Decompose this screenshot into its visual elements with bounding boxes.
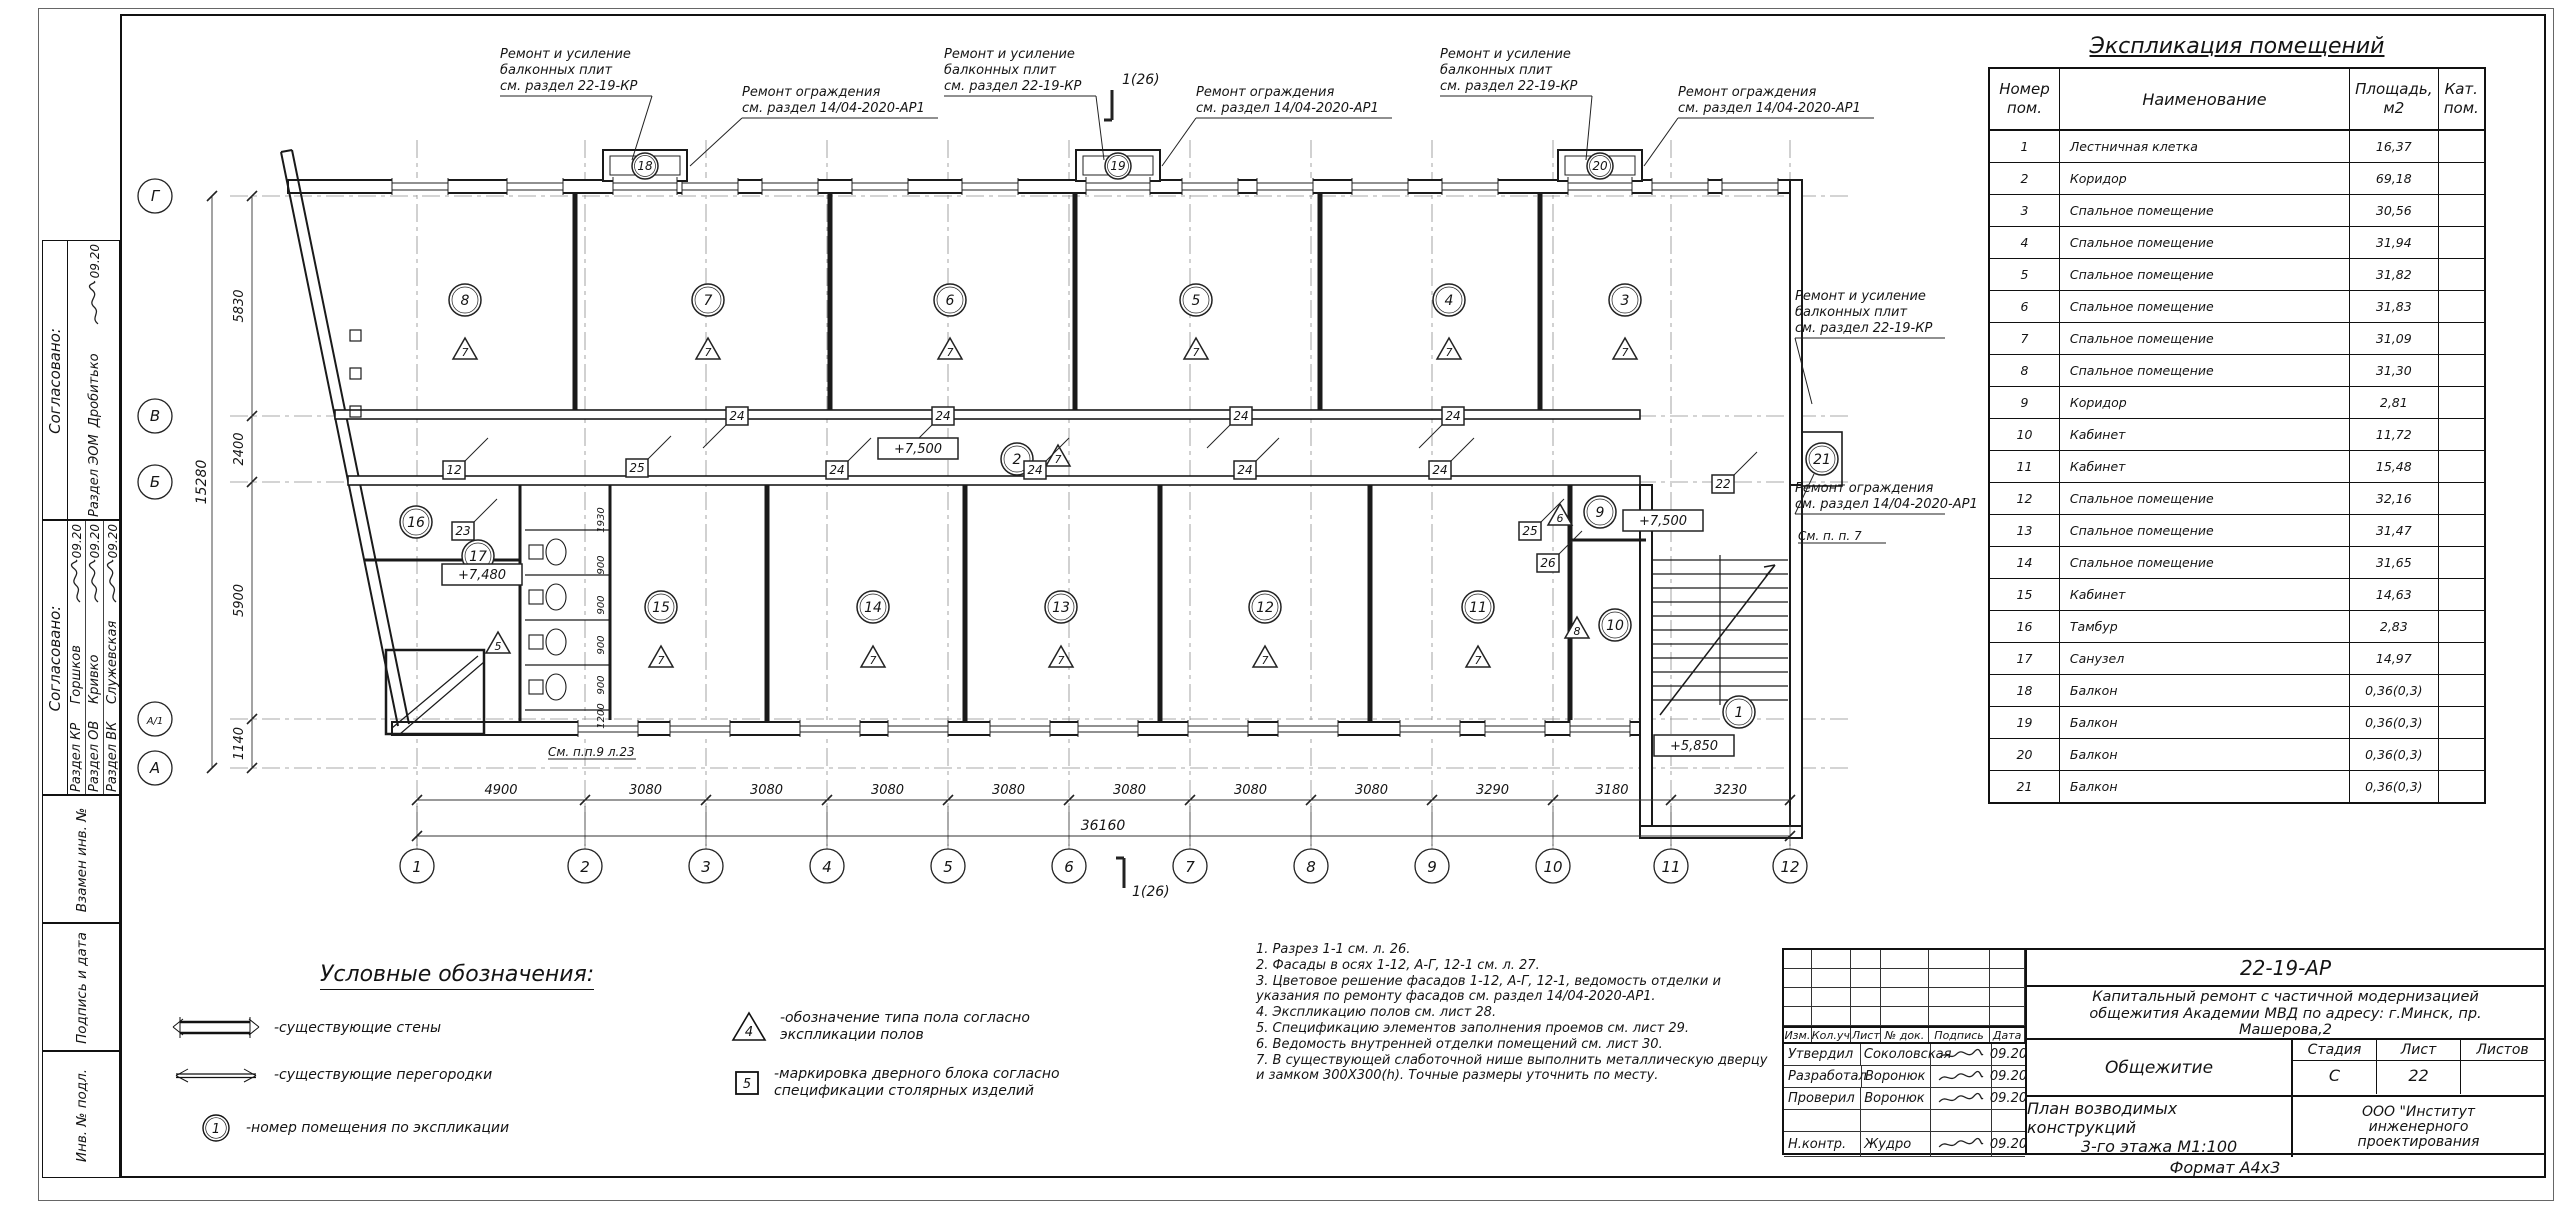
sheet-value: 22 bbox=[2377, 1061, 2461, 1094]
schedule-row: 3Спальное помещение30,56 bbox=[1989, 195, 2485, 227]
door-mark-number: 24 bbox=[1432, 463, 1447, 477]
schedule-row: 5Спальное помещение31,82 bbox=[1989, 259, 2485, 291]
signature-row: ПроверилВоронюк09.20 bbox=[1784, 1088, 2025, 1110]
schedule-row: 13Спальное помещение31,47 bbox=[1989, 515, 2485, 547]
signature-row: Н.контр.Жудро09.20 bbox=[1784, 1132, 2025, 1157]
dimension-label: 3080 bbox=[871, 783, 904, 798]
annotation-text: Ремонт ограждения bbox=[1196, 85, 1334, 100]
stamp-cell: Инв. № подл. bbox=[42, 1051, 120, 1178]
annotation-text: см. раздел 14/04-2020-АР1 bbox=[742, 101, 925, 116]
door-mark-number: 24 bbox=[1233, 409, 1248, 423]
dimension-label: 5900 bbox=[232, 584, 247, 617]
schedule-row: 18Балкон0,36(0,3) bbox=[1989, 675, 2485, 707]
annotation-text: см. раздел 22-19-КР bbox=[1795, 321, 1932, 336]
section-mark: 1(26) bbox=[1122, 72, 1160, 88]
annotation-text: см. раздел 14/04-2020-АР1 bbox=[1795, 497, 1978, 512]
general-notes: 1. Разрез 1-1 см. л. 26.2. Фасады в осях… bbox=[1256, 942, 1796, 1084]
dimension-label: 5830 bbox=[232, 289, 247, 322]
plan-note: См. п. п. 7 bbox=[1798, 529, 1862, 543]
stamp-cell: Подпись и дата bbox=[42, 923, 120, 1051]
sheet-label: Лист bbox=[2377, 1040, 2461, 1060]
room-number: 6 bbox=[946, 293, 955, 309]
stairs bbox=[1652, 555, 1788, 715]
schedule-row: 10Кабинет11,72 bbox=[1989, 419, 2485, 451]
floor-plan-svg: 1490023080330804308053080630807308083080… bbox=[130, 20, 2000, 940]
room-number: 12 bbox=[1256, 600, 1274, 616]
schedule-row: 14Спальное помещение31,65 bbox=[1989, 547, 2485, 579]
floor-type-number: 5 bbox=[495, 640, 502, 653]
signature bbox=[106, 558, 120, 604]
annotation-text: Ремонт ограждения bbox=[742, 85, 880, 100]
schedule-row: 4Спальное помещение31,94 bbox=[1989, 227, 2485, 259]
legend: Условные обозначения: -существующие стен… bbox=[170, 962, 1180, 1177]
schedule-row: 2Коридор69,18 bbox=[1989, 163, 2485, 195]
annotation-text: Ремонт и усиление bbox=[500, 47, 631, 62]
dimension-label: 4900 bbox=[484, 783, 517, 798]
project-description: Капитальный ремонт с частичной модерниза… bbox=[2027, 987, 2544, 1040]
company-name: ООО "Институт инженерного проектирования bbox=[2293, 1097, 2544, 1157]
schedule-row: 15Кабинет14,63 bbox=[1989, 579, 2485, 611]
floor-type-number: 7 bbox=[870, 654, 877, 667]
annotation-text: балконных плит bbox=[944, 63, 1056, 78]
agreed-label: Согласовано: bbox=[43, 241, 68, 520]
dimension-label: 900 bbox=[596, 595, 607, 614]
floor-type-number: 7 bbox=[947, 346, 954, 359]
annotation-text: Ремонт и усиление bbox=[1440, 47, 1571, 62]
floor-type-number: 7 bbox=[462, 346, 469, 359]
schedule-row: 9Коридор2,81 bbox=[1989, 387, 2485, 419]
axis-label: В bbox=[150, 407, 160, 425]
door-mark-number: 24 bbox=[1445, 409, 1460, 423]
floor-type-number: 7 bbox=[658, 654, 665, 667]
room-number: 21 bbox=[1813, 452, 1831, 468]
agreement-cell: Согласовано:Раздел КРГоршков09.20Раздел … bbox=[42, 520, 120, 795]
room-number: 3 bbox=[1621, 293, 1630, 309]
annotation-text: балконных плит bbox=[500, 63, 612, 78]
section-mark: 1(26) bbox=[1132, 884, 1170, 900]
axis-label: 10 bbox=[1543, 858, 1562, 876]
elevation-value: +7,500 bbox=[894, 442, 942, 457]
schedule-row: 6Спальное помещение31,83 bbox=[1989, 291, 2485, 323]
stage-sheet-cells: Стадия Лист Листов С 22 bbox=[2293, 1040, 2544, 1095]
elevation-value: +5,850 bbox=[1670, 739, 1718, 754]
annotation-text: балконных плит bbox=[1795, 305, 1907, 320]
room-number: 9 bbox=[1596, 505, 1605, 521]
annotation-text: см. раздел 22-19-КР bbox=[944, 79, 1081, 94]
room-number: 16 bbox=[407, 515, 425, 531]
schedule-row: 17Санузел14,97 bbox=[1989, 643, 2485, 675]
room-number: 1 bbox=[1735, 705, 1744, 721]
signature bbox=[88, 279, 102, 326]
legend-label-walls: -существующие стены bbox=[274, 1020, 441, 1036]
signature-row: РазработалВоронюк09.20 bbox=[1784, 1066, 2025, 1088]
elevation-value: +7,500 bbox=[1639, 514, 1687, 529]
plan-symbols: 1490023080330804308053080630807308083080… bbox=[138, 47, 1978, 900]
dimension-label: 900 bbox=[596, 675, 607, 694]
signature-row bbox=[1784, 1110, 2025, 1132]
room-number: 10 bbox=[1606, 618, 1624, 634]
annotation-text: Ремонт и усиление bbox=[944, 47, 1075, 62]
floor-type-number: 7 bbox=[1622, 346, 1629, 359]
room-number: 17 bbox=[469, 549, 487, 565]
axis-label: Б bbox=[150, 473, 160, 491]
revision-header: Изм.Кол.уч.Лист№ док.ПодписьДата bbox=[1784, 1026, 2025, 1044]
annotation-text: см. раздел 22-19-КР bbox=[1440, 79, 1577, 94]
room-number: 14 bbox=[864, 600, 882, 616]
door-mark-number: 12 bbox=[446, 463, 461, 477]
schedule-row: 12Спальное помещение32,16 bbox=[1989, 483, 2485, 515]
door-mark-number: 25 bbox=[629, 461, 644, 475]
room-schedule-table: Номерпом.НаименованиеПлощадь,м2Кат.пом.1… bbox=[1988, 67, 2486, 804]
total-dimension-label: 15280 bbox=[194, 460, 210, 505]
axis-label: 7 bbox=[1185, 858, 1195, 876]
legend-label-partitions: -существующие перегородки bbox=[274, 1067, 492, 1083]
left-stamp-strip: Согласовано:Раздел ЭОМДробитько09.20Согл… bbox=[42, 240, 120, 1178]
dimension-label: 2400 bbox=[232, 432, 247, 465]
door-mark-number: 22 bbox=[1715, 477, 1730, 491]
schedule-row: 16Тамбур2,83 bbox=[1989, 611, 2485, 643]
legend-label-door-mark: -маркировка дверного блока согласноспеци… bbox=[774, 1066, 1060, 1100]
dimension-label: 3080 bbox=[629, 783, 662, 798]
signature bbox=[1937, 1070, 1985, 1084]
dimension-label: 900 bbox=[596, 555, 607, 574]
signature bbox=[1937, 1137, 1985, 1151]
axis-grid bbox=[230, 140, 1850, 849]
annotation-text: см. раздел 22-19-КР bbox=[500, 79, 637, 94]
door-mark-number: 24 bbox=[729, 409, 744, 423]
schedule-row: 20Балкон0,36(0,3) bbox=[1989, 739, 2485, 771]
dimension-label: 3290 bbox=[1476, 783, 1509, 798]
axis-label: 12 bbox=[1780, 858, 1799, 876]
room-number: 15 bbox=[652, 600, 670, 616]
room-number: 2 bbox=[1013, 452, 1022, 468]
axis-label: 3 bbox=[701, 858, 711, 876]
door-mark-number: 24 bbox=[829, 463, 844, 477]
object-name: Общежитие bbox=[2027, 1040, 2293, 1095]
legend-label-floor-type: -обозначение типа пола согласноэкспликац… bbox=[780, 1010, 1030, 1044]
floor-type-number: 7 bbox=[1058, 654, 1065, 667]
sheets-value bbox=[2461, 1061, 2544, 1094]
axis-label: 1 bbox=[412, 858, 422, 876]
annotation-text: Ремонт ограждения bbox=[1678, 85, 1816, 100]
axis-label: 11 bbox=[1661, 858, 1680, 876]
sheets-label: Листов bbox=[2461, 1040, 2544, 1060]
signature bbox=[1937, 1092, 1985, 1106]
room-number: 7 bbox=[704, 293, 713, 309]
room-schedule-title: Экспликация помещений bbox=[1988, 34, 2486, 59]
sheet-title: План возводимых конструкций 3-го этажа М… bbox=[2027, 1097, 2293, 1157]
floor-type-number: 7 bbox=[1262, 654, 1269, 667]
room-number: 5 bbox=[1192, 293, 1201, 309]
schedule-row: 21Балкон0,36(0,3) bbox=[1989, 771, 2485, 804]
axis-label: 2 bbox=[580, 858, 590, 876]
room-number: 8 bbox=[461, 293, 470, 309]
axis-label: А bbox=[149, 759, 160, 777]
door-mark-number: 24 bbox=[935, 409, 950, 423]
floor-type-number: 7 bbox=[1055, 453, 1062, 466]
dimension-label: 3080 bbox=[1113, 783, 1146, 798]
format-label: Формат А4х3 bbox=[2105, 1158, 2345, 1177]
door-mark-number: 25 bbox=[1522, 524, 1537, 538]
room-number-icon: 1 bbox=[198, 1110, 234, 1146]
door-mark-number: 23 bbox=[455, 524, 470, 538]
axis-label: 6 bbox=[1064, 858, 1074, 876]
annotation-text: балконных плит bbox=[1440, 63, 1552, 78]
door-mark-number: 24 bbox=[1027, 463, 1042, 477]
dimension-label: 3080 bbox=[1355, 783, 1388, 798]
signature bbox=[1937, 1048, 1985, 1062]
annotation-text: см. раздел 14/04-2020-АР1 bbox=[1678, 101, 1861, 116]
drawing-sheet: Согласовано:Раздел ЭОМДробитько09.20Согл… bbox=[0, 0, 2560, 1207]
room-number: 13 bbox=[1052, 600, 1070, 616]
dimension-label: 1200 bbox=[596, 703, 607, 728]
dimension-label: 3180 bbox=[1595, 783, 1628, 798]
svg-text:5: 5 bbox=[743, 1077, 751, 1092]
plan-note: См. п.п.9 л.23 bbox=[548, 745, 635, 759]
legend-title: Условные обозначения: bbox=[320, 962, 594, 990]
stage-value: С bbox=[2293, 1061, 2377, 1094]
signature bbox=[70, 558, 84, 604]
door-mark-icon: 5 bbox=[732, 1068, 762, 1098]
room-number: 4 bbox=[1445, 293, 1454, 309]
axis-label: 9 bbox=[1427, 858, 1437, 876]
existing-partitions-icon bbox=[170, 1064, 262, 1086]
door-mark-number: 24 bbox=[1237, 463, 1252, 477]
signature-rows: УтвердилСоколовская09.20РазработалВороню… bbox=[1784, 1044, 2025, 1157]
axis-label: 4 bbox=[822, 858, 832, 876]
room-number: 11 bbox=[1469, 600, 1487, 616]
schedule-row: 1Лестничная клетка16,37 bbox=[1989, 130, 2485, 163]
dimension-label: 1930 bbox=[596, 507, 607, 532]
room-number: 19 bbox=[1110, 159, 1125, 173]
floor-type-number: 7 bbox=[1446, 346, 1453, 359]
existing-walls-icon bbox=[170, 1014, 262, 1042]
floor-type-number: 7 bbox=[1193, 346, 1200, 359]
annotation-text: Ремонт ограждения bbox=[1795, 481, 1933, 496]
document-code: 22-19-АР bbox=[2027, 950, 2544, 987]
floor-type-icon: 4 bbox=[730, 1010, 768, 1044]
axis-label: 8 bbox=[1306, 858, 1316, 876]
room-number: 20 bbox=[1592, 159, 1608, 173]
door-mark-number: 26 bbox=[1540, 556, 1556, 570]
room-number: 18 bbox=[637, 159, 653, 173]
room-schedule: Экспликация помещений Номерпом.Наименова… bbox=[1988, 34, 2486, 804]
title-block: Изм.Кол.уч.Лист№ док.ПодписьДата Утверди… bbox=[1782, 948, 2546, 1155]
revision-grid: Изм.Кол.уч.Лист№ док.ПодписьДата Утверди… bbox=[1784, 950, 2027, 1153]
dimension-label: 1140 bbox=[232, 727, 247, 760]
svg-text:4: 4 bbox=[745, 1025, 753, 1040]
schedule-row: 11Кабинет15,48 bbox=[1989, 451, 2485, 483]
stamp-cell: Взамен инв. № bbox=[42, 795, 120, 923]
signature-row: УтвердилСоколовская09.20 bbox=[1784, 1044, 2025, 1066]
schedule-row: 8Спальное помещение31,30 bbox=[1989, 355, 2485, 387]
annotation-text: Ремонт и усиление bbox=[1795, 289, 1926, 304]
dimension-label: 3080 bbox=[750, 783, 783, 798]
schedule-row: 19Балкон0,36(0,3) bbox=[1989, 707, 2485, 739]
dimension-label: 3080 bbox=[1234, 783, 1267, 798]
floor-type-number: 7 bbox=[705, 346, 712, 359]
stage-label: Стадия bbox=[2293, 1040, 2377, 1060]
elevation-value: +7,480 bbox=[458, 568, 506, 583]
legend-label-room-number: -номер помещения по экспликации bbox=[246, 1120, 509, 1136]
floor-type-number: 7 bbox=[1475, 654, 1482, 667]
schedule-row: 7Спальное помещение31,09 bbox=[1989, 323, 2485, 355]
floor-type-number: 6 bbox=[1557, 512, 1564, 525]
axis-label: А/1 bbox=[146, 716, 164, 727]
total-dimension-label: 36160 bbox=[1081, 818, 1126, 834]
agreement-cell: Согласовано:Раздел ЭОМДробитько09.20 bbox=[42, 240, 120, 520]
floor-type-number: 8 bbox=[1574, 625, 1581, 638]
dimension-label: 3080 bbox=[992, 783, 1025, 798]
annotation-text: см. раздел 14/04-2020-АР1 bbox=[1196, 101, 1379, 116]
dimension-label: 3230 bbox=[1714, 783, 1747, 798]
agreed-label: Согласовано: bbox=[43, 521, 68, 795]
svg-text:1: 1 bbox=[212, 1122, 220, 1137]
signature bbox=[88, 558, 102, 604]
axis-label: 5 bbox=[943, 858, 953, 876]
dimension-label: 900 bbox=[596, 635, 607, 654]
